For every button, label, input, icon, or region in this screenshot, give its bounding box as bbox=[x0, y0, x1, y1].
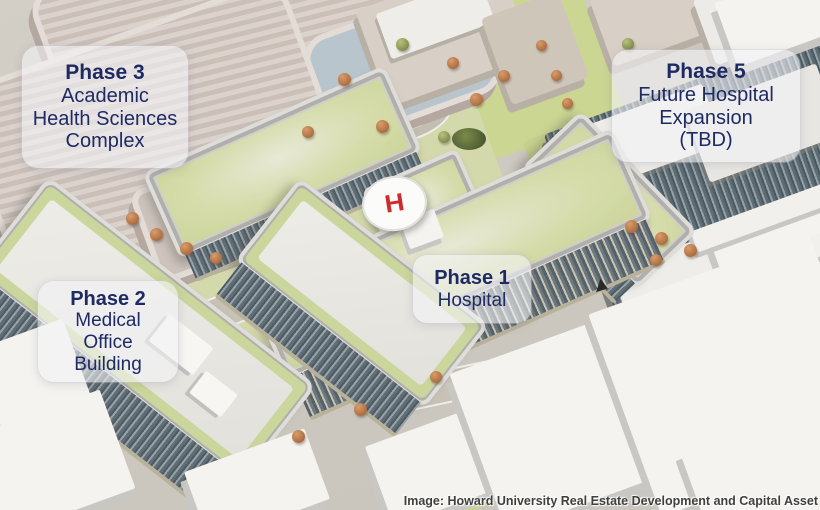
tree bbox=[625, 220, 638, 233]
tree bbox=[376, 120, 389, 133]
tree bbox=[150, 228, 163, 241]
phase3-label: Phase 3 Academic Health Sciences Complex bbox=[22, 46, 188, 168]
image-credit-caption: Image: Howard University Real Estate Dev… bbox=[404, 494, 818, 508]
tree bbox=[354, 403, 367, 416]
tree bbox=[338, 73, 351, 86]
phase1-label-subtitle: Hospital bbox=[417, 290, 527, 312]
tree bbox=[551, 70, 562, 81]
tree bbox=[684, 244, 697, 257]
tree bbox=[430, 371, 442, 383]
phase3-label-title: Phase 3 bbox=[26, 61, 184, 85]
phase5-label-title: Phase 5 bbox=[616, 60, 796, 84]
tree bbox=[562, 98, 573, 109]
tree bbox=[438, 131, 450, 143]
phase3-label-subtitle: Academic Health Sciences Complex bbox=[26, 85, 184, 153]
helipad-letter: H bbox=[383, 190, 406, 218]
tree bbox=[655, 232, 668, 245]
tree bbox=[180, 242, 193, 255]
bush bbox=[452, 128, 486, 150]
phase5-label: Phase 5 Future Hospital Expansion (TBD) bbox=[612, 50, 800, 162]
phase2-label-title: Phase 2 bbox=[42, 288, 174, 311]
tree bbox=[622, 38, 634, 50]
tree bbox=[126, 212, 139, 225]
tree bbox=[210, 252, 222, 264]
phase2-label: Phase 2 Medical Office Building bbox=[38, 281, 178, 382]
phase2-label-subtitle: Medical Office Building bbox=[42, 310, 174, 375]
tree bbox=[536, 40, 547, 51]
tree bbox=[396, 38, 409, 51]
phase1-label: Phase 1 Hospital bbox=[413, 255, 531, 323]
campus-master-plan-rendering: H Phase 3 Academic bbox=[0, 0, 820, 510]
tree bbox=[447, 57, 459, 69]
phase5-label-subtitle: Future Hospital Expansion (TBD) bbox=[616, 84, 796, 152]
tree bbox=[470, 93, 483, 106]
tree bbox=[302, 126, 314, 138]
tree bbox=[292, 430, 305, 443]
phase1-label-title: Phase 1 bbox=[417, 267, 527, 290]
tree bbox=[650, 254, 662, 266]
tree bbox=[498, 70, 510, 82]
